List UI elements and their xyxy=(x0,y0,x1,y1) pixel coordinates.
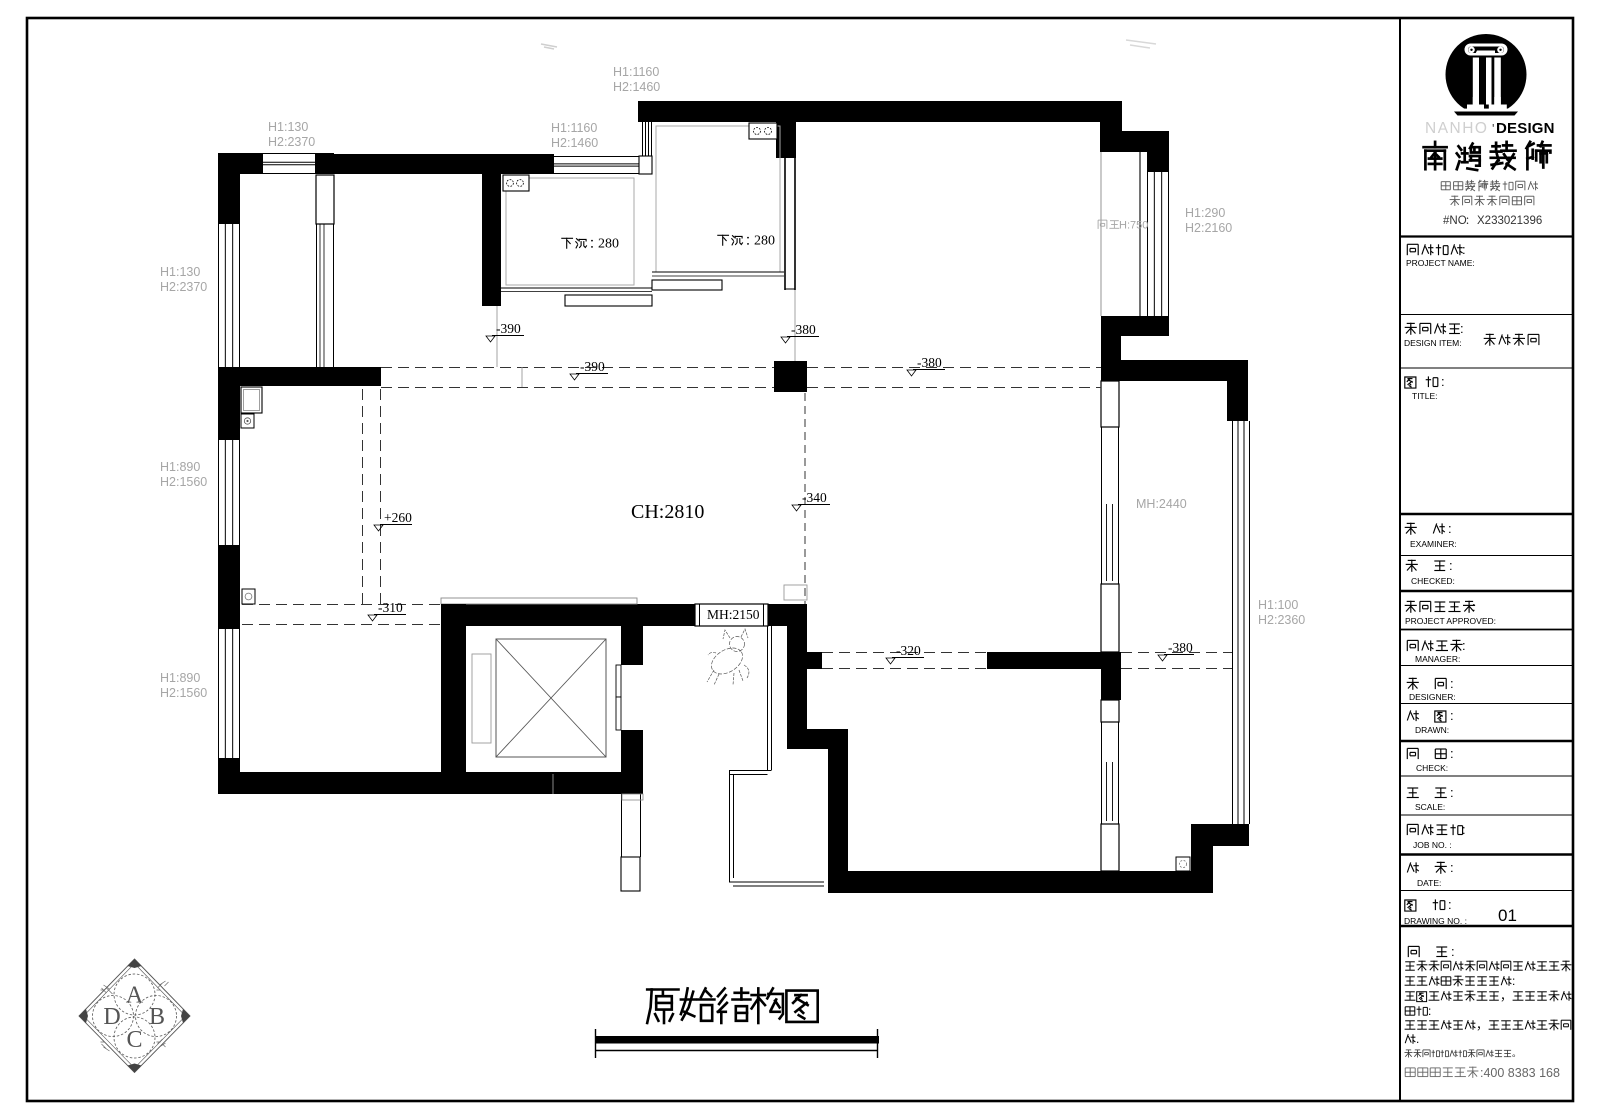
svg-text:H2:2360: H2:2360 xyxy=(1258,613,1305,627)
svg-text::: : xyxy=(1512,974,1515,988)
svg-text::: : xyxy=(1450,785,1454,800)
svg-text:CHECKED:: CHECKED: xyxy=(1411,576,1455,586)
svg-text::400 8383 168: :400 8383 168 xyxy=(1480,1066,1560,1080)
svg-text:H1:1160: H1:1160 xyxy=(613,65,659,79)
svg-text:CHECK:: CHECK: xyxy=(1416,763,1448,773)
svg-text:-380: -380 xyxy=(1168,640,1193,655)
svg-text::: : xyxy=(1462,638,1466,653)
svg-text::: : xyxy=(1428,1004,1431,1018)
svg-text:H1:890: H1:890 xyxy=(160,460,200,474)
svg-text::: : xyxy=(1450,746,1454,761)
svg-text:PROJECT NAME:: PROJECT NAME: xyxy=(1406,258,1475,268)
svg-text:DRAWING NO. :: DRAWING NO. : xyxy=(1404,916,1467,926)
svg-text:D: D xyxy=(103,1004,120,1030)
svg-text:#NO: #NO xyxy=(1443,215,1467,227)
svg-text:-380: -380 xyxy=(791,322,816,337)
svg-text:MH:2150: MH:2150 xyxy=(707,607,760,622)
svg-text:H1:130: H1:130 xyxy=(160,265,200,279)
svg-text:NANHO: NANHO xyxy=(1425,120,1488,137)
svg-text:DRAWN:: DRAWN: xyxy=(1415,725,1449,735)
svg-text::: : xyxy=(1450,708,1454,723)
svg-text:-320: -320 xyxy=(896,643,921,658)
svg-text:280: 280 xyxy=(754,234,775,249)
svg-text:.: . xyxy=(1416,1032,1419,1046)
svg-text:-310: -310 xyxy=(378,600,403,615)
svg-text:DESIGN: DESIGN xyxy=(1496,120,1555,137)
svg-text:H1:1160: H1:1160 xyxy=(551,121,597,135)
svg-text:-390: -390 xyxy=(496,321,521,336)
svg-text::: : xyxy=(1472,599,1476,614)
svg-text:X233021396: X233021396 xyxy=(1477,215,1542,227)
svg-text:，: ， xyxy=(1476,1018,1488,1032)
svg-text::: : xyxy=(1450,676,1454,691)
svg-text::: : xyxy=(1441,374,1445,389)
svg-text:，: ， xyxy=(1500,989,1512,1003)
svg-text:H1:100: H1:100 xyxy=(1258,598,1298,612)
svg-text::: : xyxy=(1462,242,1466,257)
svg-text:DESIGNER:: DESIGNER: xyxy=(1409,692,1456,702)
svg-text:H1:290: H1:290 xyxy=(1185,206,1225,220)
svg-text:DATE:: DATE: xyxy=(1417,878,1441,888)
svg-text:TITLE:: TITLE: xyxy=(1412,391,1438,401)
svg-text:+260: +260 xyxy=(384,510,412,525)
svg-text::: : xyxy=(1448,521,1452,536)
svg-text:H1:130: H1:130 xyxy=(268,120,308,134)
svg-text::: : xyxy=(1460,321,1464,336)
svg-text:。: 。 xyxy=(1512,1049,1521,1059)
svg-text:EXAMINER:: EXAMINER: xyxy=(1410,539,1457,549)
svg-text:C: C xyxy=(126,1027,142,1053)
svg-text:A: A xyxy=(126,983,144,1009)
svg-text:H2:1560: H2:1560 xyxy=(160,475,207,489)
svg-text::: : xyxy=(1462,822,1466,837)
svg-text:-390: -390 xyxy=(580,359,605,374)
svg-text:：: ： xyxy=(1465,216,1475,227)
svg-text:H1:890: H1:890 xyxy=(160,671,200,685)
svg-text:H2:2370: H2:2370 xyxy=(160,280,207,294)
svg-text:PROJECT APPROVED:: PROJECT APPROVED: xyxy=(1405,616,1496,626)
svg-text::: : xyxy=(1450,860,1454,875)
svg-text:JOB NO. :: JOB NO. : xyxy=(1413,840,1452,850)
svg-text:MANAGER:: MANAGER: xyxy=(1415,654,1460,664)
svg-text:01: 01 xyxy=(1498,906,1517,925)
svg-text:MH:2440: MH:2440 xyxy=(1136,497,1187,511)
svg-text:CH:2810: CH:2810 xyxy=(631,501,704,523)
svg-text:H2:1460: H2:1460 xyxy=(551,136,598,150)
svg-text:H2:2370: H2:2370 xyxy=(268,135,315,149)
svg-text:-380: -380 xyxy=(917,355,942,370)
svg-text:B: B xyxy=(149,1004,165,1030)
svg-text:H:750: H:750 xyxy=(1119,220,1148,232)
svg-text:-340: -340 xyxy=(802,490,827,505)
svg-text:H2:1460: H2:1460 xyxy=(613,80,660,94)
svg-text::: : xyxy=(1448,897,1452,912)
svg-text::: : xyxy=(1449,558,1453,573)
svg-text:H2:1560: H2:1560 xyxy=(160,686,207,700)
svg-text::: : xyxy=(1451,944,1455,959)
svg-text:SCALE:: SCALE: xyxy=(1415,802,1445,812)
svg-text:DESIGN ITEM:: DESIGN ITEM: xyxy=(1404,338,1462,348)
svg-text:H2:2160: H2:2160 xyxy=(1185,221,1232,235)
svg-text:280: 280 xyxy=(598,237,619,252)
svg-text:': ' xyxy=(1492,121,1494,136)
